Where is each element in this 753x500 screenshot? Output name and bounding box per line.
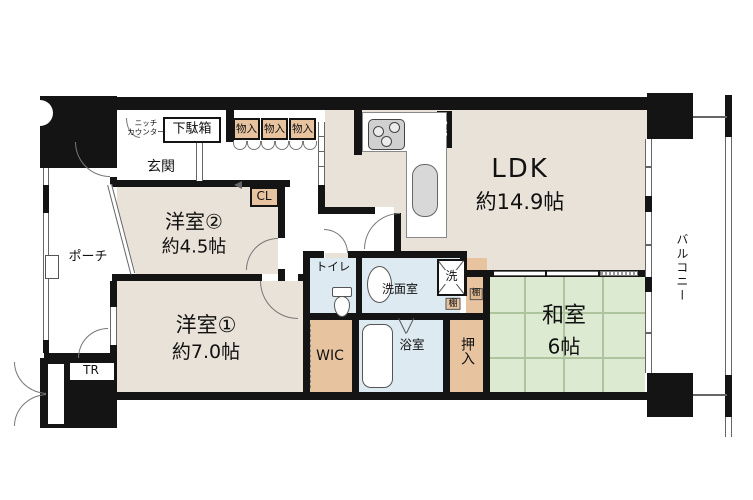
wall-top [112,97,652,110]
stove-burner-icon [373,126,384,137]
wall-corner-block-br [647,373,693,417]
bathtub-icon [362,324,393,388]
label-washroom: 洗面室 [382,283,418,297]
trunk-door-leaf [46,362,66,426]
stove-burner-icon [389,122,400,133]
label-niche-counter: ニッチ カウンター [127,119,165,136]
door-stop-marker [234,181,242,189]
partition-tick [318,166,325,167]
wall-western2-right-b [278,269,285,281]
stove-burner-icon [381,136,392,147]
hatched-vent-strip [600,271,638,276]
wall-western1-right [303,251,310,393]
entrance-step-line [196,142,203,181]
label-shelf-2: 棚 [470,288,483,300]
wall-notch [27,100,53,126]
sliding-door-japanese-a [494,271,545,276]
door-arc-trunk-lower [14,394,48,426]
sliding-door-japanese-b [547,271,598,276]
room-label-western2: 洋室② [165,211,223,234]
wall-kitchen-stub [354,110,362,155]
balcony-bottom-line [693,394,727,396]
balcony-top-line [693,116,727,118]
label-wic: WIC [316,348,344,364]
wall-wet-top-b [348,251,466,258]
label-storage-2: 物入 [264,123,285,135]
porch-rail-post [43,185,49,213]
label-trunk-room: TR [83,364,99,378]
label-toilet: トイレ [316,260,351,273]
storage-door-arc [289,141,303,150]
label-storage-3: 物入 [292,123,313,135]
door-arc-entrance [75,142,110,177]
wall-wic-bath [352,320,359,392]
partition-tick [318,151,325,152]
niche-counter-line2: カウンター [127,127,165,136]
room-area-japanese: 6帖 [548,336,581,359]
balcony-rail-post [725,375,732,417]
label-pipe-space: PS [441,120,449,138]
room-area-western1: 約7.0帖 [172,342,240,364]
window-western1-left [110,307,117,345]
door-arc-trunk-upper [14,362,48,394]
kitchen-sink-icon [412,164,438,217]
wall-wet-mid [303,313,490,320]
wall-toilet-washroom [356,258,362,313]
wall-right-a [645,196,652,212]
wall-bottom [110,392,652,400]
wall-entrance-left-a [110,97,117,142]
label-shelf-1: 棚 [445,298,460,310]
porch-rail-post [43,340,49,353]
label-bathroom: 浴室 [399,338,424,352]
room-area-ldk: 約14.9帖 [476,190,565,214]
room-label-ldk: LDK [491,155,549,185]
label-entrance: 玄関 [147,159,175,175]
room-area-western2: 約4.5帖 [162,238,227,259]
door-arc-porch-gate [78,328,108,358]
room-label-western1: 洋室① [176,313,237,337]
label-storage-1: 物入 [236,123,257,135]
label-closet-cl: CL [256,190,271,204]
wall-western2-right-a [278,187,285,238]
tatami-grid-line [602,277,604,392]
label-porch: ポーチ [68,251,107,266]
wall-bath-oshiire [443,320,450,392]
wall-western1-left-a [110,281,117,307]
wall-rooms-divider-a [112,274,262,281]
label-shoe-cabinet: 下駄箱 [172,123,211,138]
storage-door-arc [303,141,317,150]
wall-entrance-bottom [112,180,290,187]
window-ldk-a [645,139,652,196]
window-tick [645,332,652,334]
wall-wet-top-a [310,251,324,258]
wall-hall-h1 [318,207,375,214]
partition-tick [318,136,325,137]
label-washer: 洗 [444,270,458,284]
wall-right-b [645,277,652,292]
storage-door-arc [275,141,289,150]
label-oshiire: 押入 [460,337,474,365]
storage-door-arc [261,141,275,150]
storage-door-arc [233,141,247,150]
wall-oshiire-japanese [483,277,490,393]
storage-door-arc [247,141,261,150]
sliding-partition-hall-ldk [318,122,325,185]
floorplan-canvas: LDK 約14.9帖 洋室② 約4.5帖 洋室① 約7.0帖 和室 6帖 玄関 … [0,0,753,500]
label-balcony: バルコニー [674,233,688,303]
room-label-japanese: 和室 [542,303,586,328]
window-tick [645,244,652,246]
wall-corner-block-tr [647,93,693,139]
window-tick [645,166,652,168]
tatami-grid-line [524,277,526,392]
wic-sliding-door [310,324,311,388]
meter-box [45,255,59,279]
